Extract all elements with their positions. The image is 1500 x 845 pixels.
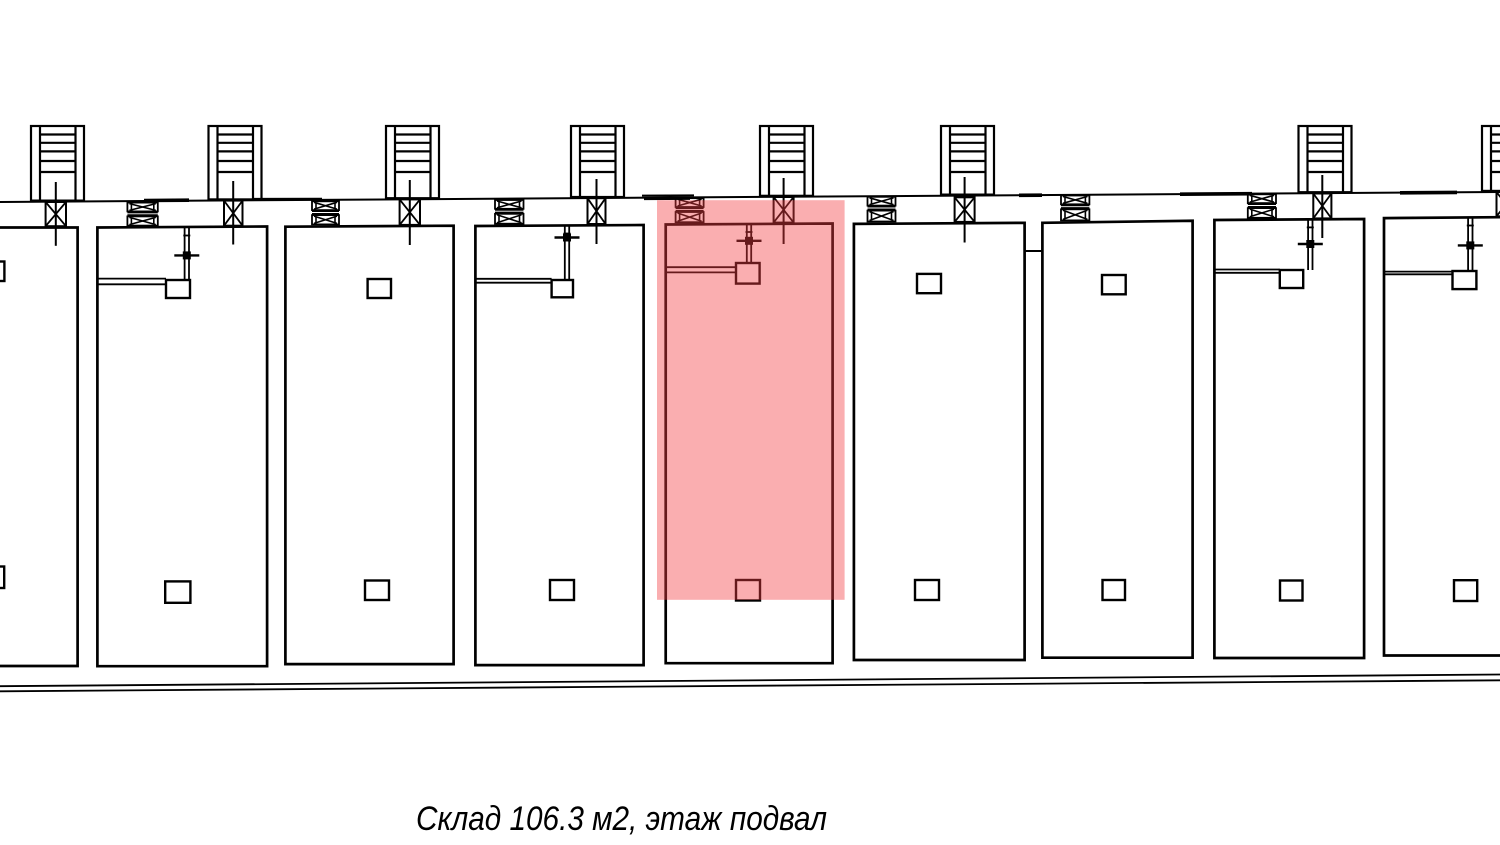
svg-text:Склад 106.3 м2, этаж подвал: Склад 106.3 м2, этаж подвал bbox=[416, 800, 827, 838]
